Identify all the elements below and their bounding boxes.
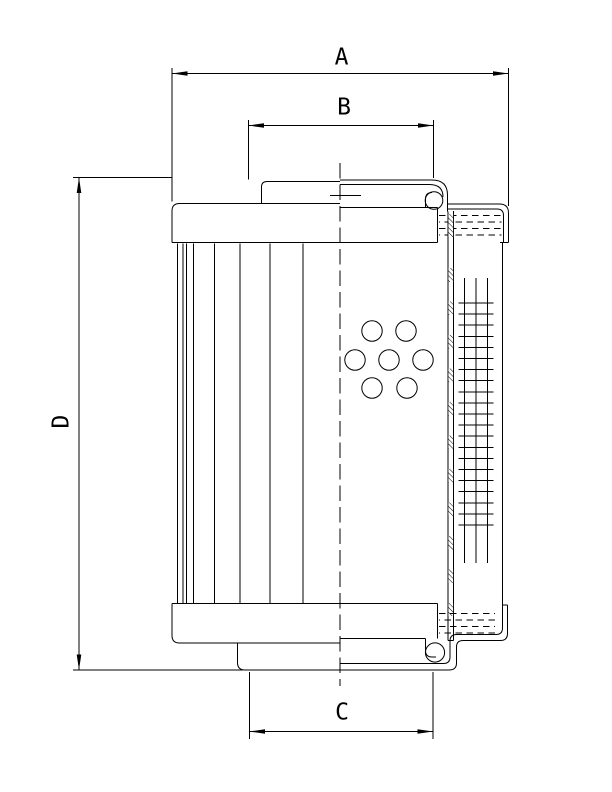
technical-drawing-canvas: A B C D <box>0 0 612 792</box>
o-ring-top <box>425 192 443 210</box>
dim-label-c: C <box>335 700 349 726</box>
hole <box>413 350 433 370</box>
hole <box>362 378 382 398</box>
dim-d-arrow-top <box>77 178 82 194</box>
dim-label-a: A <box>335 45 349 71</box>
top-cap-left <box>172 204 340 243</box>
hole-pattern <box>345 321 433 398</box>
dim-c-arrow-right <box>418 729 434 734</box>
core-tube <box>448 211 454 641</box>
top-collar-seam <box>262 180 448 212</box>
hole <box>396 321 416 341</box>
dimension-d: D <box>49 178 244 671</box>
pleat-lines <box>178 244 304 604</box>
bottom-end-cap <box>172 604 438 644</box>
dim-b-arrow-right <box>418 123 434 128</box>
hole <box>362 321 382 341</box>
hole <box>345 350 365 370</box>
dimension-b: B <box>249 95 434 180</box>
dim-a-arrow-left <box>172 71 188 76</box>
bottom-collar-seam <box>238 605 508 670</box>
dimension-c: C <box>250 672 434 739</box>
shell-top-flange <box>448 204 509 243</box>
dim-a-arrow-right <box>493 71 509 76</box>
outer-shell <box>503 243 508 606</box>
dim-label-d: D <box>49 415 75 429</box>
dim-label-b: B <box>337 95 351 121</box>
seal-hatch-bottom <box>439 614 495 634</box>
hole <box>397 378 417 398</box>
flange-top-inner <box>448 209 504 243</box>
bottom-seam-outer <box>238 605 508 670</box>
top-end-cap <box>172 204 438 243</box>
o-ring-bottom <box>425 643 444 662</box>
dim-b-arrow-left <box>249 123 265 128</box>
dim-c-arrow-left <box>250 729 266 734</box>
drawing-page: A B C D <box>0 0 612 792</box>
dim-d-arrow-bottom <box>77 655 82 671</box>
wire-mesh-grid <box>459 278 494 563</box>
core-tube-hatch-segments <box>448 214 453 616</box>
hole <box>379 350 399 370</box>
bottom-cap-left <box>172 604 340 644</box>
top-collar-outline <box>262 182 341 204</box>
